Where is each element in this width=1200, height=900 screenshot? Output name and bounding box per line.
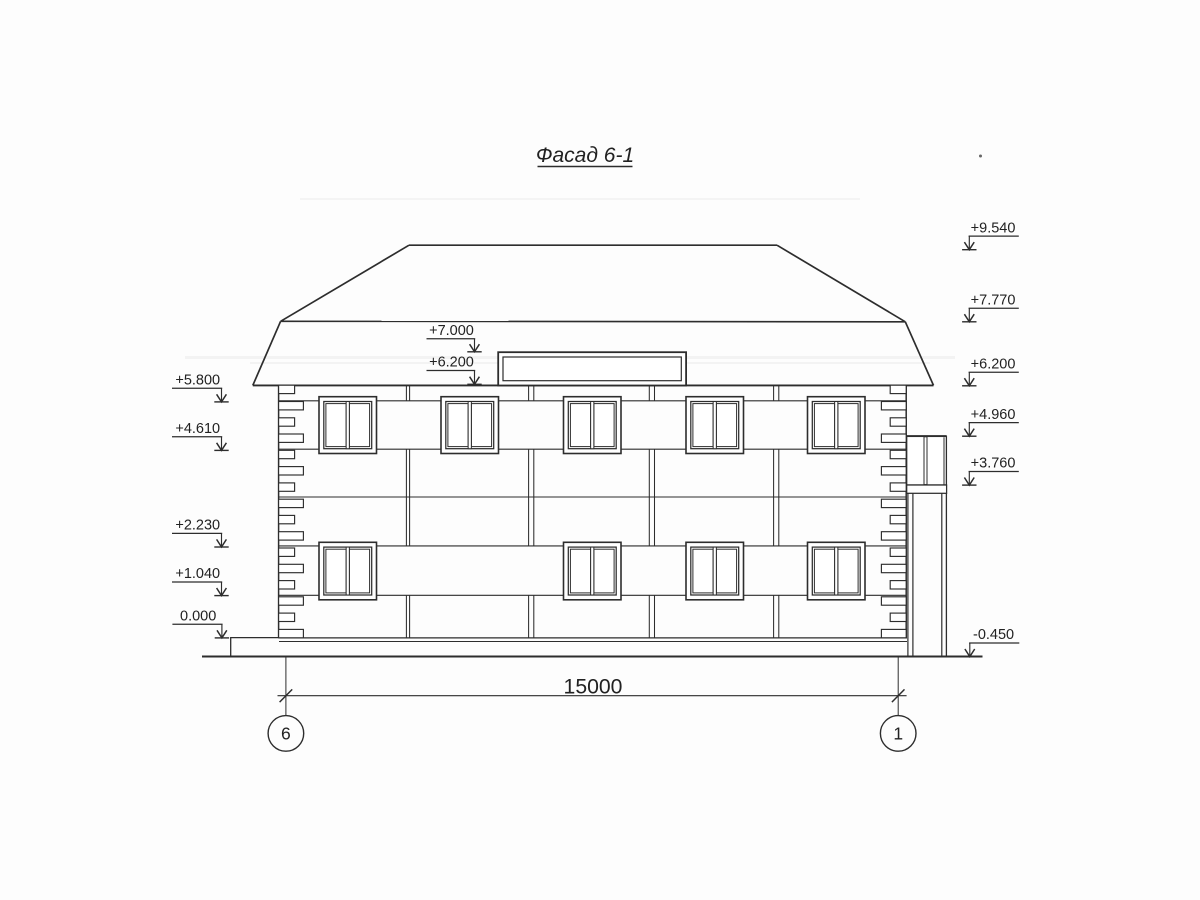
svg-text:+4.960: +4.960 [971, 407, 1016, 423]
svg-text:+7.770: +7.770 [971, 292, 1016, 308]
svg-text:1: 1 [893, 724, 903, 744]
svg-text:+6.200: +6.200 [429, 355, 474, 371]
svg-text:6: 6 [281, 724, 291, 744]
svg-text:+4.610: +4.610 [175, 421, 220, 437]
svg-text:+2.230: +2.230 [175, 518, 220, 534]
svg-text:+1.040: +1.040 [175, 566, 220, 582]
svg-text:-0.450: -0.450 [973, 627, 1014, 643]
svg-text:+5.800: +5.800 [175, 373, 220, 389]
svg-text:+6.200: +6.200 [971, 356, 1016, 372]
svg-text:15000: 15000 [564, 676, 623, 699]
svg-text:0.000: 0.000 [180, 609, 216, 625]
svg-text:+9.540: +9.540 [971, 220, 1016, 236]
svg-text:+3.760: +3.760 [971, 456, 1016, 472]
svg-text:+7.000: +7.000 [429, 323, 474, 339]
svg-text:Фасад 6-1: Фасад 6-1 [536, 144, 634, 167]
